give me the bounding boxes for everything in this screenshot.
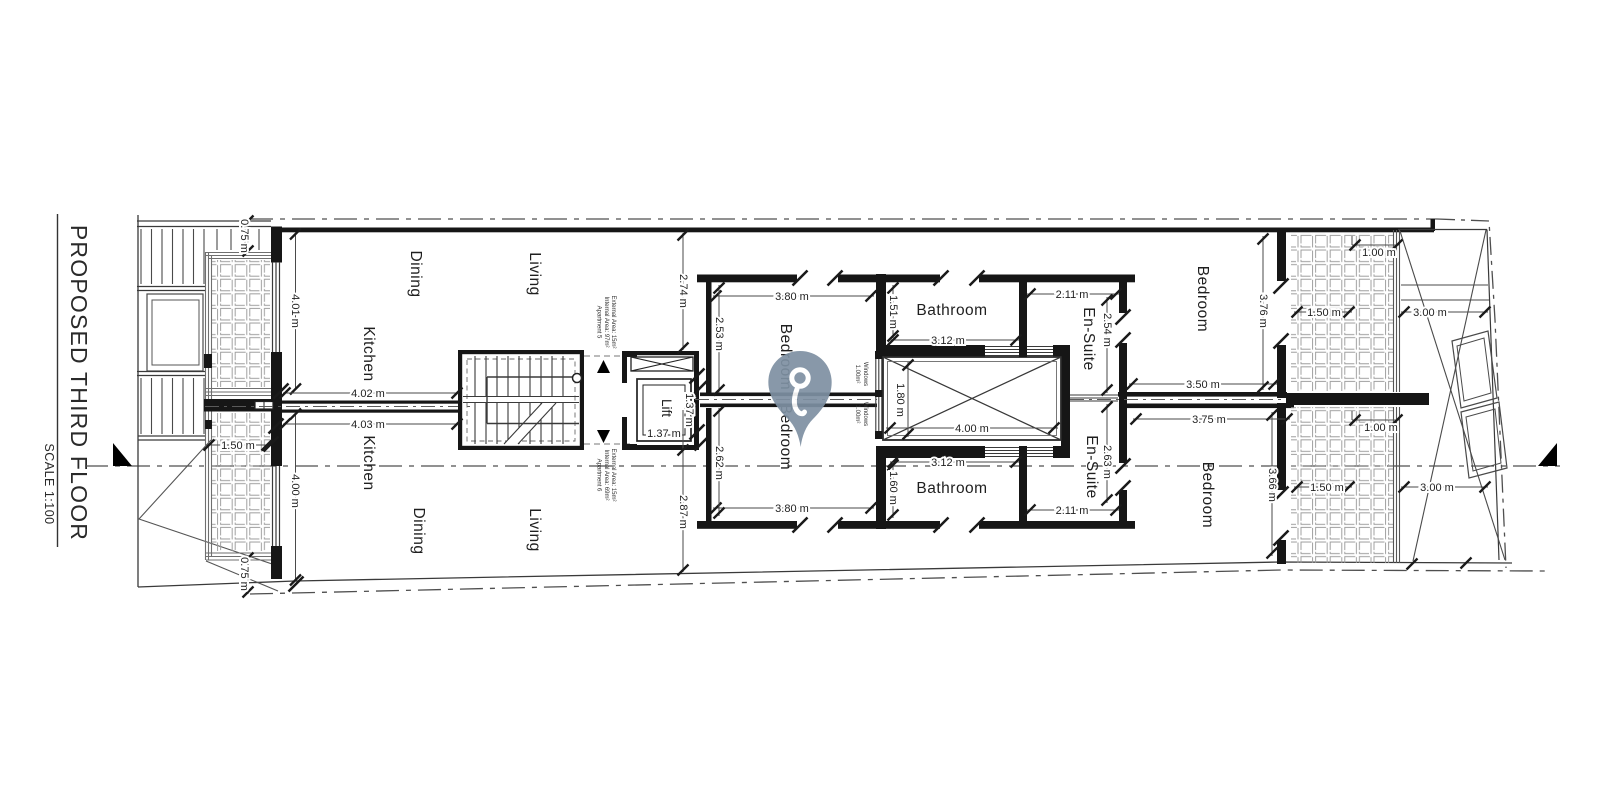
svg-text:3.75 m: 3.75 m bbox=[1192, 414, 1226, 426]
svg-text:Windows: Windows bbox=[862, 402, 868, 426]
svg-text:4.00 m: 4.00 m bbox=[289, 474, 301, 508]
svg-text:Windows: Windows bbox=[862, 362, 868, 386]
svg-text:1.50 m: 1.50 m bbox=[1310, 482, 1344, 494]
svg-text:Living: Living bbox=[526, 252, 543, 296]
svg-text:1.00 m: 1.00 m bbox=[1362, 247, 1396, 259]
svg-text:Internal Area: 69m²: Internal Area: 69m² bbox=[603, 449, 609, 500]
svg-text:Kitchen: Kitchen bbox=[360, 326, 377, 381]
svg-text:External Area: 15m²: External Area: 15m² bbox=[610, 295, 616, 348]
svg-text:Living: Living bbox=[526, 508, 543, 552]
svg-text:2.11 m: 2.11 m bbox=[1056, 505, 1089, 517]
svg-text:3.80 m: 3.80 m bbox=[775, 503, 809, 515]
svg-text:3.12 m: 3.12 m bbox=[931, 457, 965, 469]
svg-text:4.01 m: 4.01 m bbox=[289, 294, 301, 328]
svg-text:4.02 m: 4.02 m bbox=[351, 388, 385, 400]
svg-text:Apartment 6: Apartment 6 bbox=[596, 459, 602, 492]
svg-text:En-Suite: En-Suite bbox=[1080, 307, 1097, 370]
svg-text:Dining: Dining bbox=[410, 508, 427, 555]
svg-text:External Area: 15m²: External Area: 15m² bbox=[610, 448, 616, 501]
svg-text:2.87 m: 2.87 m bbox=[677, 495, 689, 529]
svg-text:2.54 m: 2.54 m bbox=[1101, 313, 1113, 347]
svg-text:0.75 m: 0.75 m bbox=[238, 219, 250, 253]
svg-text:1.37 m: 1.37 m bbox=[683, 393, 695, 427]
svg-text:Internal Area: 97m²: Internal Area: 97m² bbox=[603, 296, 609, 347]
svg-text:3.76 m: 3.76 m bbox=[1257, 294, 1269, 328]
svg-text:2.62 m: 2.62 m bbox=[713, 446, 725, 480]
svg-text:3.00 m: 3.00 m bbox=[1420, 482, 1454, 494]
svg-text:3.80 m: 3.80 m bbox=[775, 291, 809, 303]
svg-text:1.00 m: 1.00 m bbox=[1364, 422, 1398, 434]
svg-text:En-Suite: En-Suite bbox=[1083, 435, 1100, 498]
svg-text:2.63 m: 2.63 m bbox=[1101, 445, 1113, 479]
svg-text:2.53 m: 2.53 m bbox=[713, 317, 725, 351]
svg-text:2.11 m: 2.11 m bbox=[1056, 289, 1089, 301]
svg-text:1.37 m: 1.37 m bbox=[647, 428, 681, 440]
svg-text:1.80 m: 1.80 m bbox=[894, 383, 906, 417]
svg-text:Dining: Dining bbox=[407, 251, 424, 298]
svg-text:1.00m²: 1.00m² bbox=[854, 365, 860, 384]
svg-text:0.75 m: 0.75 m bbox=[238, 557, 250, 591]
svg-text:SCALE 1:100: SCALE 1:100 bbox=[42, 443, 56, 524]
svg-text:1.60 m: 1.60 m bbox=[887, 471, 899, 505]
svg-text:Bathroom: Bathroom bbox=[916, 302, 987, 319]
svg-text:Lift: Lift bbox=[659, 399, 674, 417]
svg-text:3.50 m: 3.50 m bbox=[1186, 379, 1220, 391]
svg-text:Bedroom: Bedroom bbox=[1194, 266, 1211, 332]
svg-text:PROPOSED THIRD FLOOR: PROPOSED THIRD FLOOR bbox=[66, 225, 92, 541]
svg-text:Kitchen: Kitchen bbox=[360, 435, 377, 490]
svg-text:Apartment 5: Apartment 5 bbox=[596, 306, 602, 339]
svg-text:Bedroom: Bedroom bbox=[1199, 462, 1216, 528]
svg-text:1.00m²: 1.00m² bbox=[854, 405, 860, 424]
svg-text:1.50 m: 1.50 m bbox=[221, 440, 255, 452]
svg-text:Bathroom: Bathroom bbox=[916, 480, 987, 497]
svg-text:3.66 m: 3.66 m bbox=[1266, 468, 1278, 502]
svg-text:3.00 m: 3.00 m bbox=[1413, 307, 1447, 319]
svg-text:4.03 m: 4.03 m bbox=[351, 419, 385, 431]
svg-text:4.00 m: 4.00 m bbox=[955, 423, 989, 435]
svg-text:2.74 m: 2.74 m bbox=[677, 274, 689, 308]
svg-text:1.51 m: 1.51 m bbox=[887, 295, 899, 329]
svg-text:1.50 m: 1.50 m bbox=[1307, 307, 1341, 319]
svg-text:3.12 m: 3.12 m bbox=[931, 335, 965, 347]
